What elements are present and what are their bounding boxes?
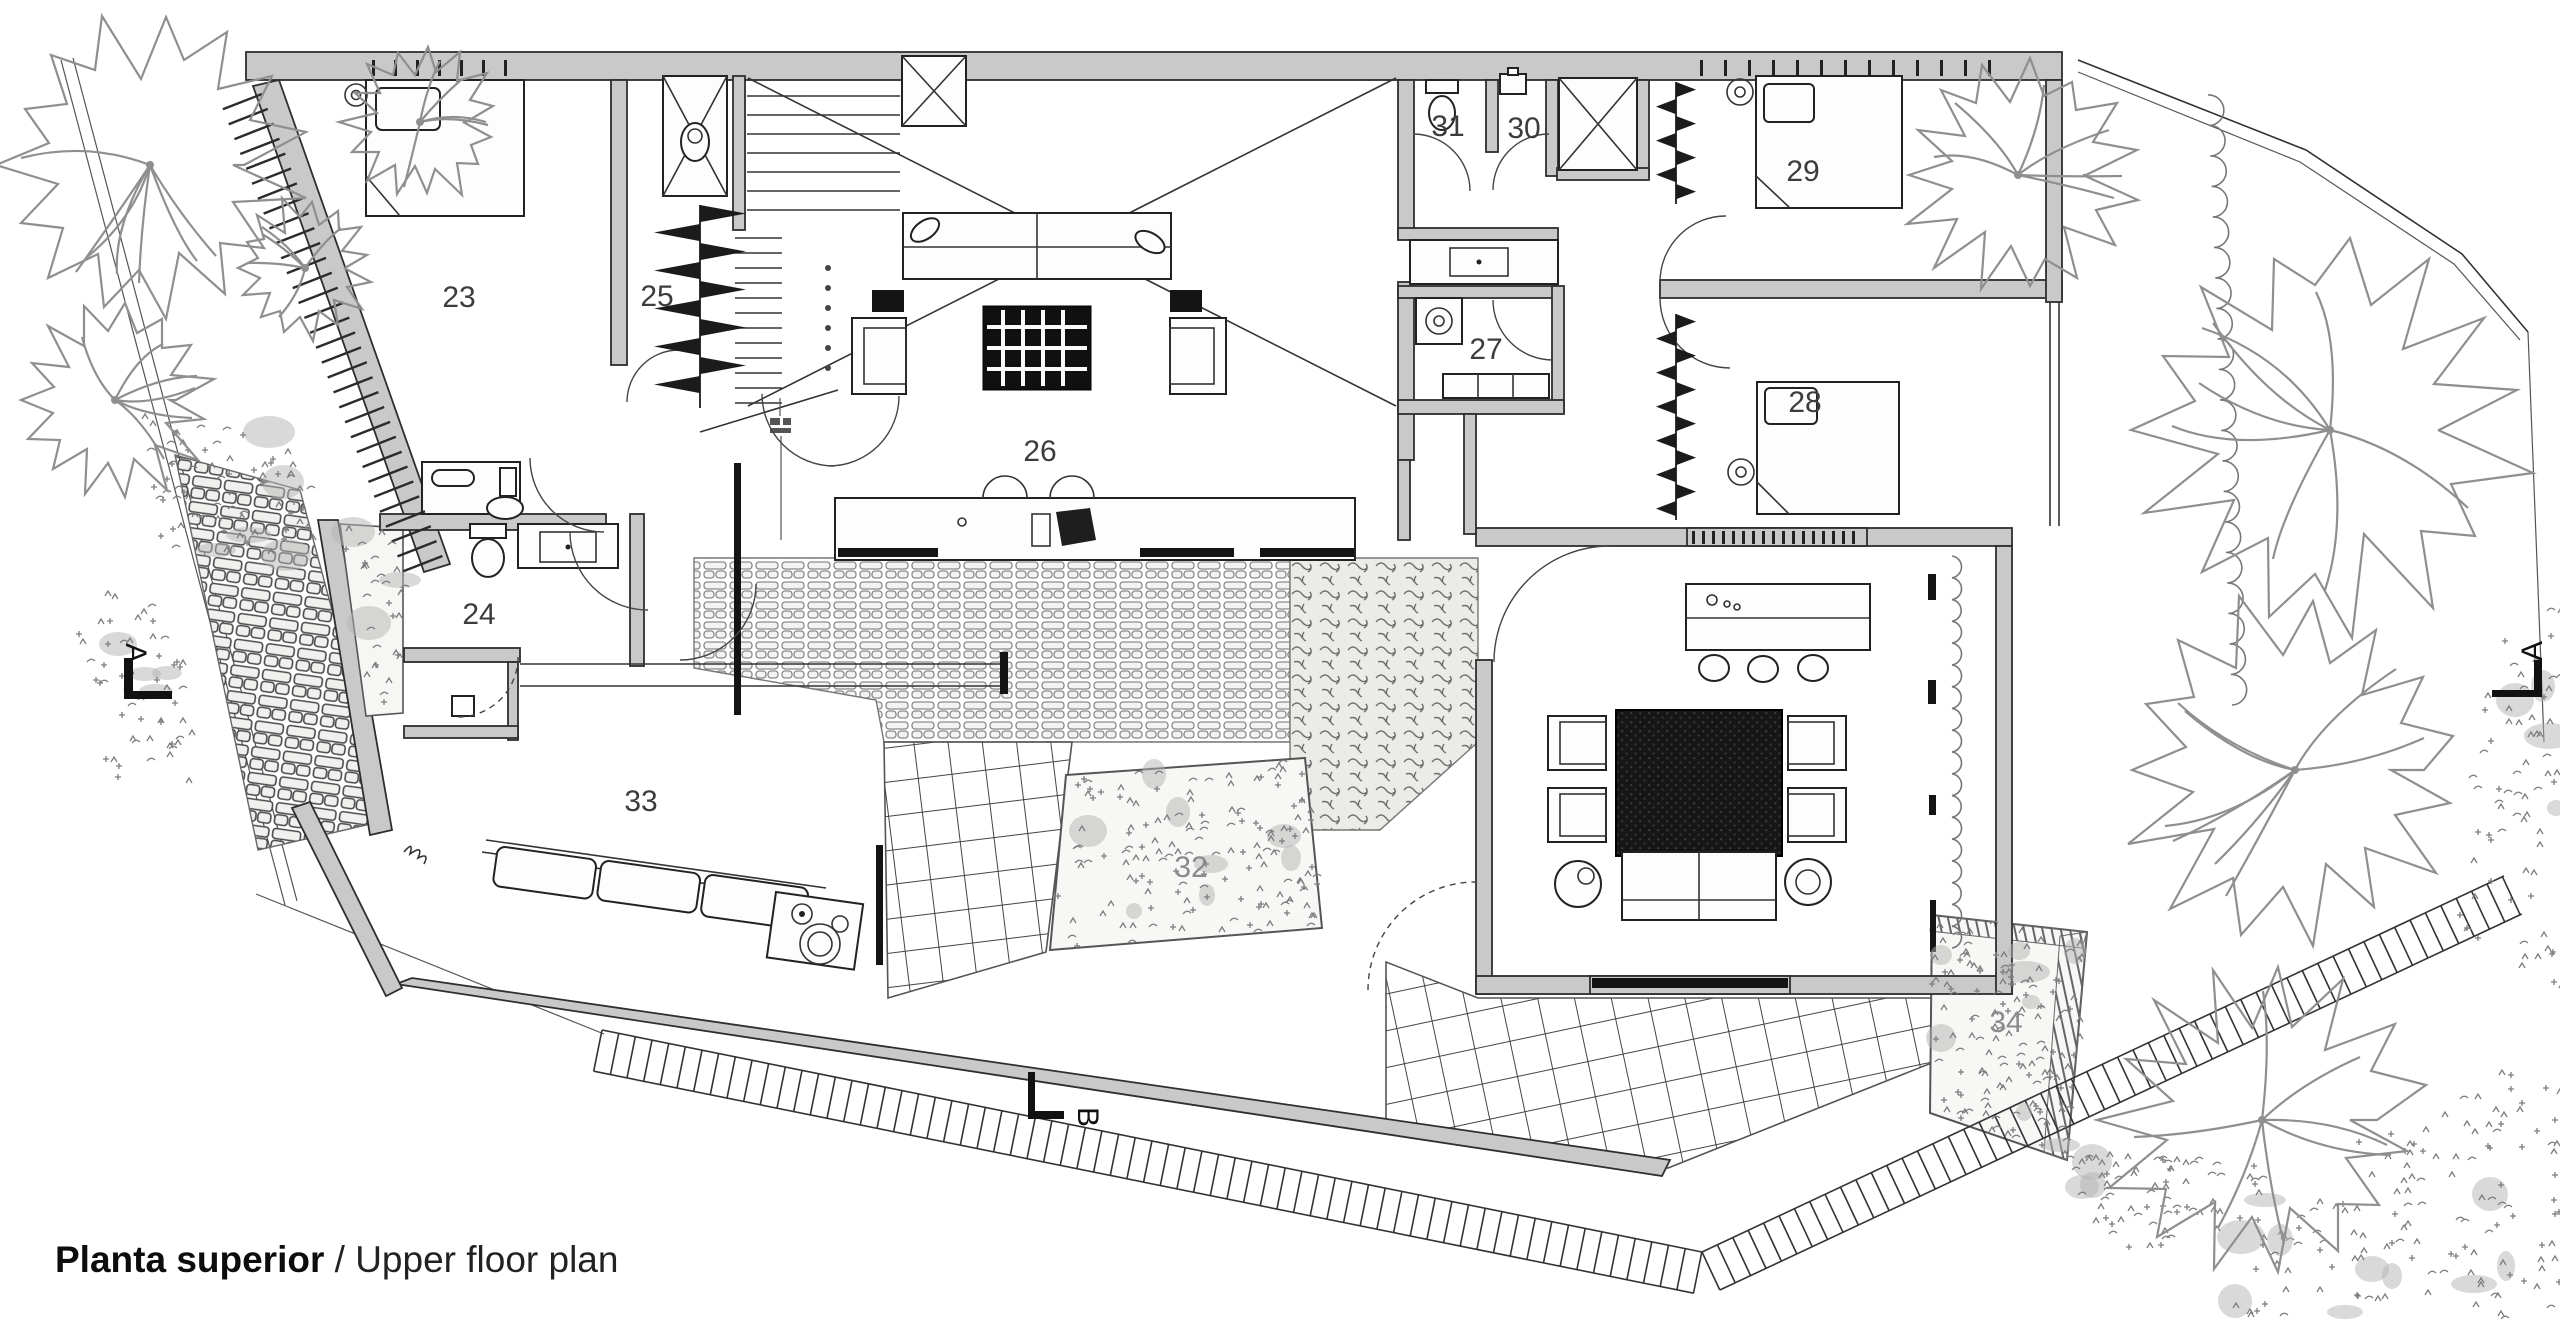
coffee-table-grid [983, 306, 1091, 390]
room-label-34: 34 [1989, 1006, 2022, 1039]
sheet-title: Planta superior / Upper floor plan [55, 1239, 618, 1280]
room-label-25: 25 [640, 280, 673, 313]
room-label-23: 23 [442, 281, 475, 314]
svg-text:A: A [119, 643, 152, 663]
side-table [1555, 861, 1601, 907]
room-label-31: 31 [1431, 110, 1464, 143]
desk-chair [487, 497, 523, 519]
tree [2128, 596, 2453, 946]
title-spanish: Planta superior [55, 1239, 324, 1280]
grill-table [767, 892, 863, 970]
tree [2131, 238, 2533, 638]
courtyard-pavers [694, 558, 1290, 742]
rug [1616, 710, 1782, 856]
tile-patch-west [884, 742, 1072, 998]
gravel-strip [1290, 558, 1478, 830]
stool [1699, 655, 1729, 681]
room-label-27: 27 [1469, 333, 1502, 366]
stool [1748, 656, 1778, 682]
title-english: Upper floor plan [355, 1239, 618, 1280]
tree [2097, 967, 2426, 1272]
room-label-29: 29 [1786, 155, 1819, 188]
toilet-31 [1426, 80, 1458, 93]
svg-text:B: B [1071, 1107, 1104, 1127]
laundry-counter [1443, 374, 1549, 398]
sink-30 [1500, 74, 1526, 94]
stool [1798, 655, 1828, 681]
side-table [1785, 859, 1831, 905]
upper-floor-plan-sheet: 23 24 25 26 27 28 29 30 31 32 33 34 A A … [0, 0, 2560, 1324]
room-label-30: 30 [1507, 112, 1540, 145]
armchair [852, 318, 906, 394]
toilet-24 [470, 524, 506, 538]
floor-plan-drawing: 23 24 25 26 27 28 29 30 31 32 33 34 A A … [0, 0, 2560, 1324]
room-label-33: 33 [624, 785, 657, 818]
corridor-vanity [1410, 240, 1558, 284]
room-label-24: 24 [462, 598, 495, 631]
svg-text:A: A [2516, 641, 2549, 661]
room-label-26: 26 [1023, 435, 1056, 468]
tree [1907, 58, 2138, 289]
washer [1416, 298, 1462, 344]
armchair [1170, 318, 1226, 394]
room-label-28: 28 [1788, 386, 1821, 419]
room-label-32: 32 [1174, 851, 1207, 884]
bar-counter [1686, 584, 1870, 650]
